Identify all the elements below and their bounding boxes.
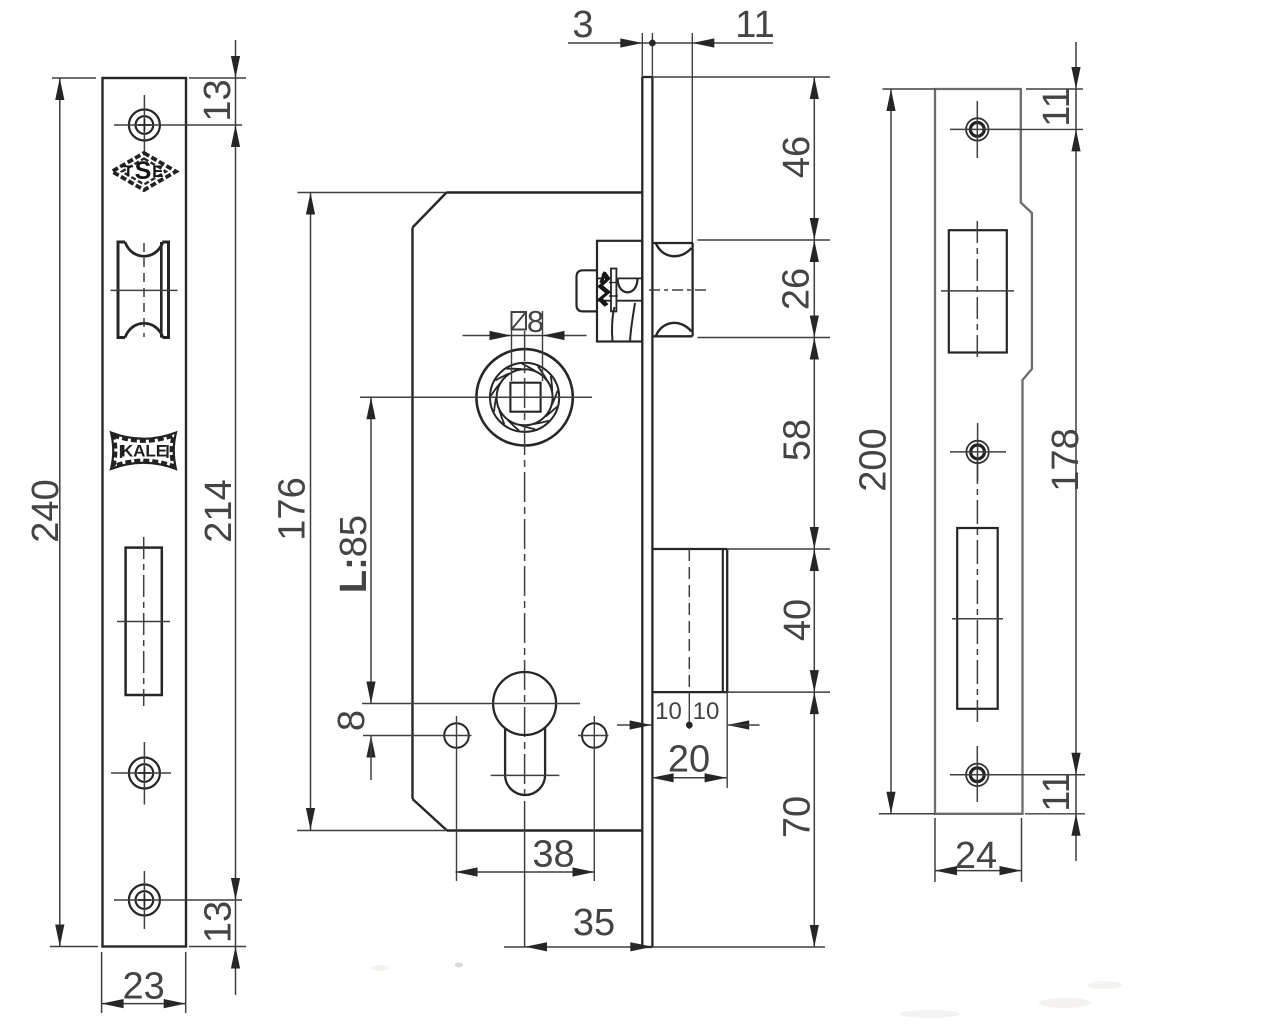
svg-text:11: 11 xyxy=(735,4,774,46)
svg-text:13: 13 xyxy=(198,901,240,943)
svg-text:70: 70 xyxy=(777,796,819,838)
svg-text:214: 214 xyxy=(198,479,240,542)
svg-text:E: E xyxy=(152,162,163,181)
svg-text:58: 58 xyxy=(777,419,819,461)
svg-text:11: 11 xyxy=(1036,87,1078,126)
svg-text:11: 11 xyxy=(1036,772,1078,811)
svg-text:200: 200 xyxy=(853,428,895,491)
svg-text:176: 176 xyxy=(272,477,314,540)
svg-text:L:85: L:85 xyxy=(333,515,375,593)
svg-text:23: 23 xyxy=(122,966,164,1008)
svg-text:38: 38 xyxy=(532,834,574,876)
svg-text:S: S xyxy=(135,157,152,185)
svg-text:13: 13 xyxy=(197,79,239,121)
svg-text:3: 3 xyxy=(572,4,593,46)
svg-text:26: 26 xyxy=(776,268,818,310)
svg-text:T: T xyxy=(123,164,133,181)
svg-text:178: 178 xyxy=(1045,428,1087,491)
svg-text:10: 10 xyxy=(693,698,720,725)
svg-text:24: 24 xyxy=(955,835,997,877)
svg-text:KALE: KALE xyxy=(121,442,167,461)
svg-text:8: 8 xyxy=(527,304,544,339)
svg-text:46: 46 xyxy=(776,136,818,178)
svg-text:8: 8 xyxy=(331,710,373,731)
svg-text:20: 20 xyxy=(668,739,710,781)
svg-text:240: 240 xyxy=(25,479,67,542)
svg-text:40: 40 xyxy=(777,599,819,641)
svg-text:35: 35 xyxy=(573,902,615,944)
svg-text:10: 10 xyxy=(655,698,682,725)
